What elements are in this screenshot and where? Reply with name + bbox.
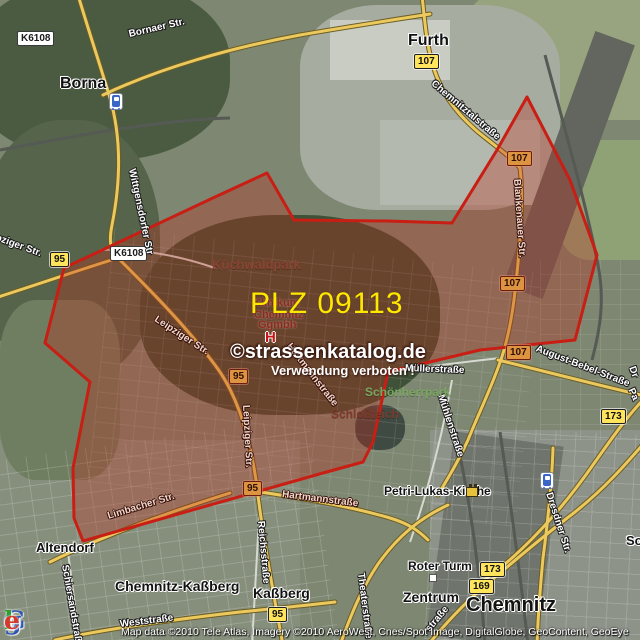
road-badge-k6108: K6108 [17,31,54,46]
water-label-schlossteich: Schloßteich [331,408,399,420]
train-station-icon[interactable] [109,93,123,110]
church-icon[interactable] [466,487,478,497]
park-label-schoenherrpark: Schönherrpark [365,386,450,398]
road-badge-b95: 95 [50,252,69,267]
church-tower [474,484,477,488]
map-attribution: Map data ©2010 Tele Atlas, Imagery ©2010… [121,627,629,638]
road-badge-b107: 107 [506,345,531,360]
watermark-line1: ©strassenkatalog.de [230,342,426,362]
place-label-kassberg: Kaßberg [253,586,310,600]
place-label-zentrum: Zentrum [403,590,459,604]
park-label-kuechwaldpark: Küchwaldpark [212,258,301,271]
road-badge-b173: 173 [601,409,626,424]
road-badge-b95: 95 [229,369,248,384]
place-label-roter-turm: Roter Turm [408,560,472,572]
place-label-sonnenberg-clipped: Sonn [626,534,640,547]
poi-klinikum-line3: Ggmbh [258,320,297,331]
church-tower [469,484,472,488]
place-label-borna: Borna [60,76,106,92]
plz-area-title: PLZ 09113 [250,289,404,319]
road-badge-b173: 173 [480,562,505,577]
road-badge-b107: 107 [414,54,439,69]
street-label: Leipziger Str. [240,405,253,468]
logo-letter: e [4,608,19,633]
place-label-chemnitz: Chemnitz [466,595,556,615]
satellite-map-canvas[interactable]: K6108 K6108 95 107 107 107 107 95 95 173… [0,0,640,640]
train-window [545,476,550,480]
road-badge-b107: 107 [500,276,525,291]
train-station-icon[interactable] [540,472,554,489]
train-wheel [118,108,120,110]
road-badge-b95: 95 [243,481,262,496]
road-badge-b107: 107 [507,151,532,166]
place-label-altendorf: Altendorf [36,541,94,554]
train-window [114,97,119,101]
road-badge-b169: 169 [469,579,494,594]
watermark-line2: Verwendung verboten ! [271,364,415,377]
place-label-furth: Furth [408,33,449,49]
train-wheel [112,108,114,110]
plz-area-overlay [0,0,640,640]
roter-turm-icon[interactable] [429,574,437,582]
train-wheel [543,487,545,489]
train-wheel [549,487,551,489]
road-badge-b95: 95 [268,607,287,622]
place-label-chemnitz-kassberg: Chemnitz-Kaßberg [115,579,239,593]
